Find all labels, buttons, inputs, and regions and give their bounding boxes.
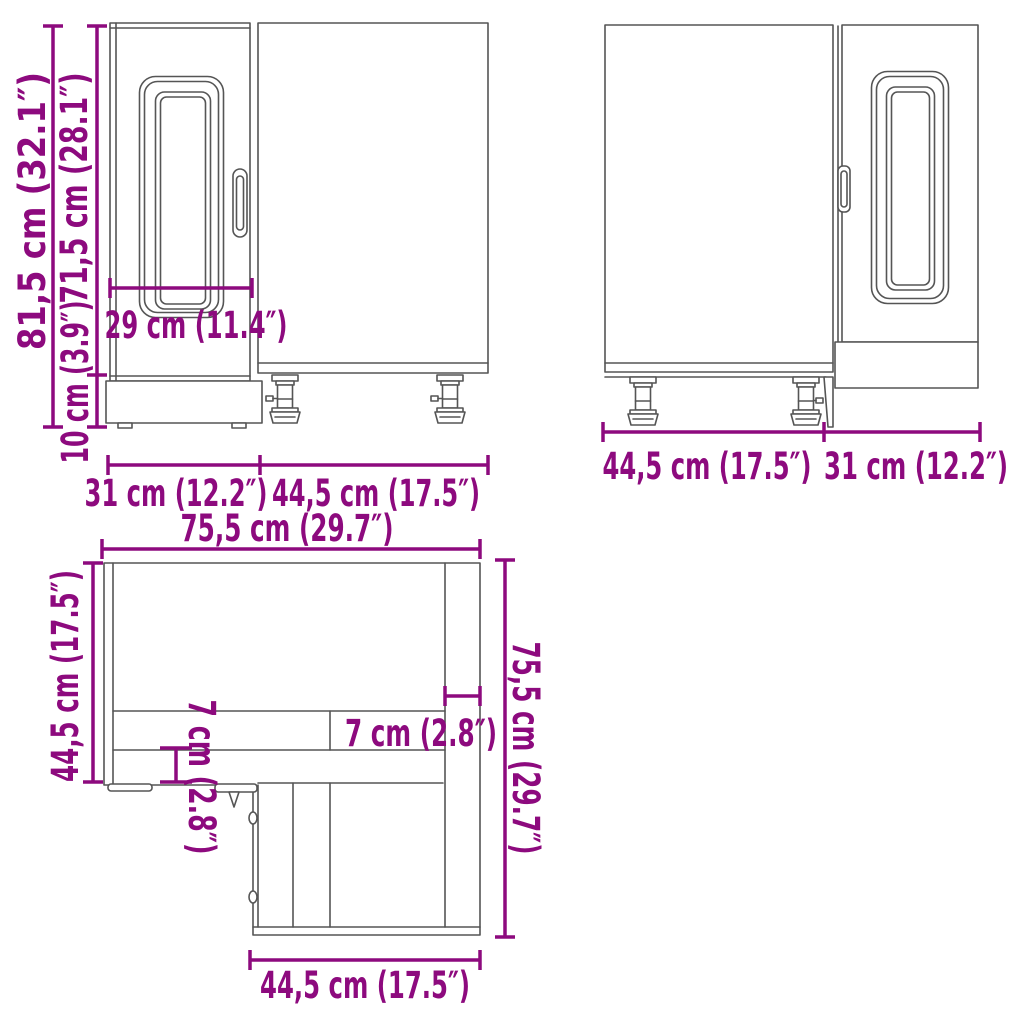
dim-top-overall-depth: 75,5 cm (29.7″) (495, 560, 547, 937)
diagram-canvas: 81,5 cm (32.1″) 71,5 cm (28.1″) 10 cm (3… (0, 0, 1024, 1024)
top-view-foot-glide (229, 792, 239, 807)
dimension-diagram: 81,5 cm (32.1″) 71,5 cm (28.1″) 10 cm (3… (0, 0, 1024, 1024)
dim-label-front-door-height: 71,5 cm (28.1″) (53, 73, 96, 304)
front-side-panel (258, 23, 488, 373)
top-view: 75,5 cm (29.7″) 44,5 cm (17.5″) 7 cm (2.… (44, 507, 547, 1007)
dim-label-top-overall-depth: 75,5 cm (29.7″) (504, 642, 547, 855)
dim-label-top-side-panel-width: 7 cm (2.8″) (345, 712, 497, 755)
front-plinth (106, 381, 262, 423)
dim-label-back-door-width: 31 cm (12.2″) (824, 445, 1008, 488)
back-view: 44,5 cm (17.5″) 31 cm (12.2″) (603, 25, 1009, 488)
dim-back-bottom-widths: 44,5 cm (17.5″) 31 cm (12.2″) (603, 422, 1009, 488)
dim-label-top-front-width: 44,5 cm (17.5″) (260, 964, 470, 1007)
dim-label-top-left-depth: 44,5 cm (17.5″) (44, 570, 87, 782)
dim-front-bottom-widths: 31 cm (12.2″) 44,5 cm (17.5″) (85, 455, 489, 515)
dim-label-top-overall-width: 75,5 cm (29.7″) (181, 507, 394, 550)
dim-label-front-door-inner-width: 29 cm (11.4″) (105, 304, 288, 347)
top-view-hinge-upper (249, 812, 257, 824)
dim-label-back-side-width: 44,5 cm (17.5″) (603, 445, 812, 488)
back-door-base (835, 342, 978, 388)
front-door-handle (233, 169, 247, 237)
dim-top-left-depth: 44,5 cm (17.5″) (44, 563, 103, 782)
front-view: 81,5 cm (32.1″) 71,5 cm (28.1″) 10 cm (3… (11, 23, 488, 515)
dim-top-front-width: 44,5 cm (17.5″) (250, 950, 480, 1007)
back-corner-support (824, 377, 833, 427)
top-view-hinge-lower (249, 891, 257, 903)
back-door-handle (838, 166, 850, 212)
dim-label-front-overall-height: 81,5 cm (32.1″) (11, 72, 54, 350)
dim-front-door-height: 71,5 cm (28.1″) 10 cm (3.9″) (53, 26, 107, 464)
top-view-front-tab-left (108, 784, 152, 791)
dim-label-front-plinth-height: 10 cm (3.9″) (54, 301, 97, 464)
back-door-panel (842, 25, 978, 342)
dim-label-top-front-rail-depth: 7 cm (2.8″) (180, 700, 223, 855)
back-side-panel (605, 25, 833, 372)
